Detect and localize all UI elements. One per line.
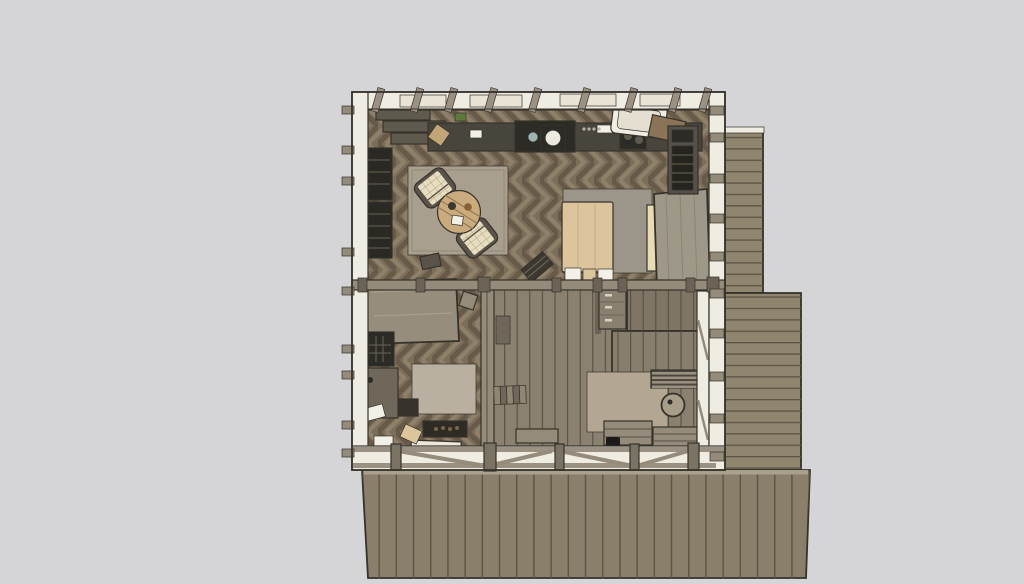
post-4 — [630, 444, 639, 470]
drawer-cabinet — [599, 289, 626, 329]
post-2 — [484, 443, 496, 471]
study-rug — [412, 364, 476, 414]
hall-steps — [494, 385, 527, 404]
white-box — [374, 436, 393, 447]
napkin — [451, 215, 463, 225]
post-1 — [391, 444, 401, 470]
deck-bottom — [362, 470, 810, 578]
sink-basin — [545, 130, 561, 146]
roof-panel-2 — [470, 95, 522, 107]
bowl-brown — [464, 203, 472, 211]
wood-stove — [423, 421, 467, 437]
coffee-table — [437, 191, 481, 234]
living-area — [408, 165, 508, 270]
cabin-top-view-render — [0, 0, 1024, 584]
porch-inner-wall — [697, 291, 709, 455]
round-table — [662, 394, 685, 417]
burner-2 — [635, 136, 643, 144]
roof-panel-1 — [400, 95, 446, 107]
hall-shelf — [496, 316, 510, 344]
white-item — [470, 130, 482, 138]
deck-right-narrow-boards — [722, 132, 763, 293]
deck-bottom-boards — [362, 470, 810, 578]
counter-slab-1 — [376, 109, 430, 120]
hall-bench — [516, 429, 558, 443]
post-3 — [555, 444, 564, 470]
study-stool — [399, 399, 418, 416]
shower — [668, 126, 698, 194]
wardrobe — [654, 189, 710, 289]
sink-small-basin — [528, 132, 538, 142]
post-5 — [688, 443, 699, 470]
cup — [668, 400, 673, 405]
green-item — [455, 113, 466, 121]
bed-blanket — [562, 202, 613, 272]
bowl-dark — [448, 202, 456, 210]
deck-right-wide-boards — [722, 293, 801, 470]
pillows — [565, 268, 613, 281]
deck-right-ledge — [722, 127, 764, 133]
deck-right — [722, 127, 801, 470]
